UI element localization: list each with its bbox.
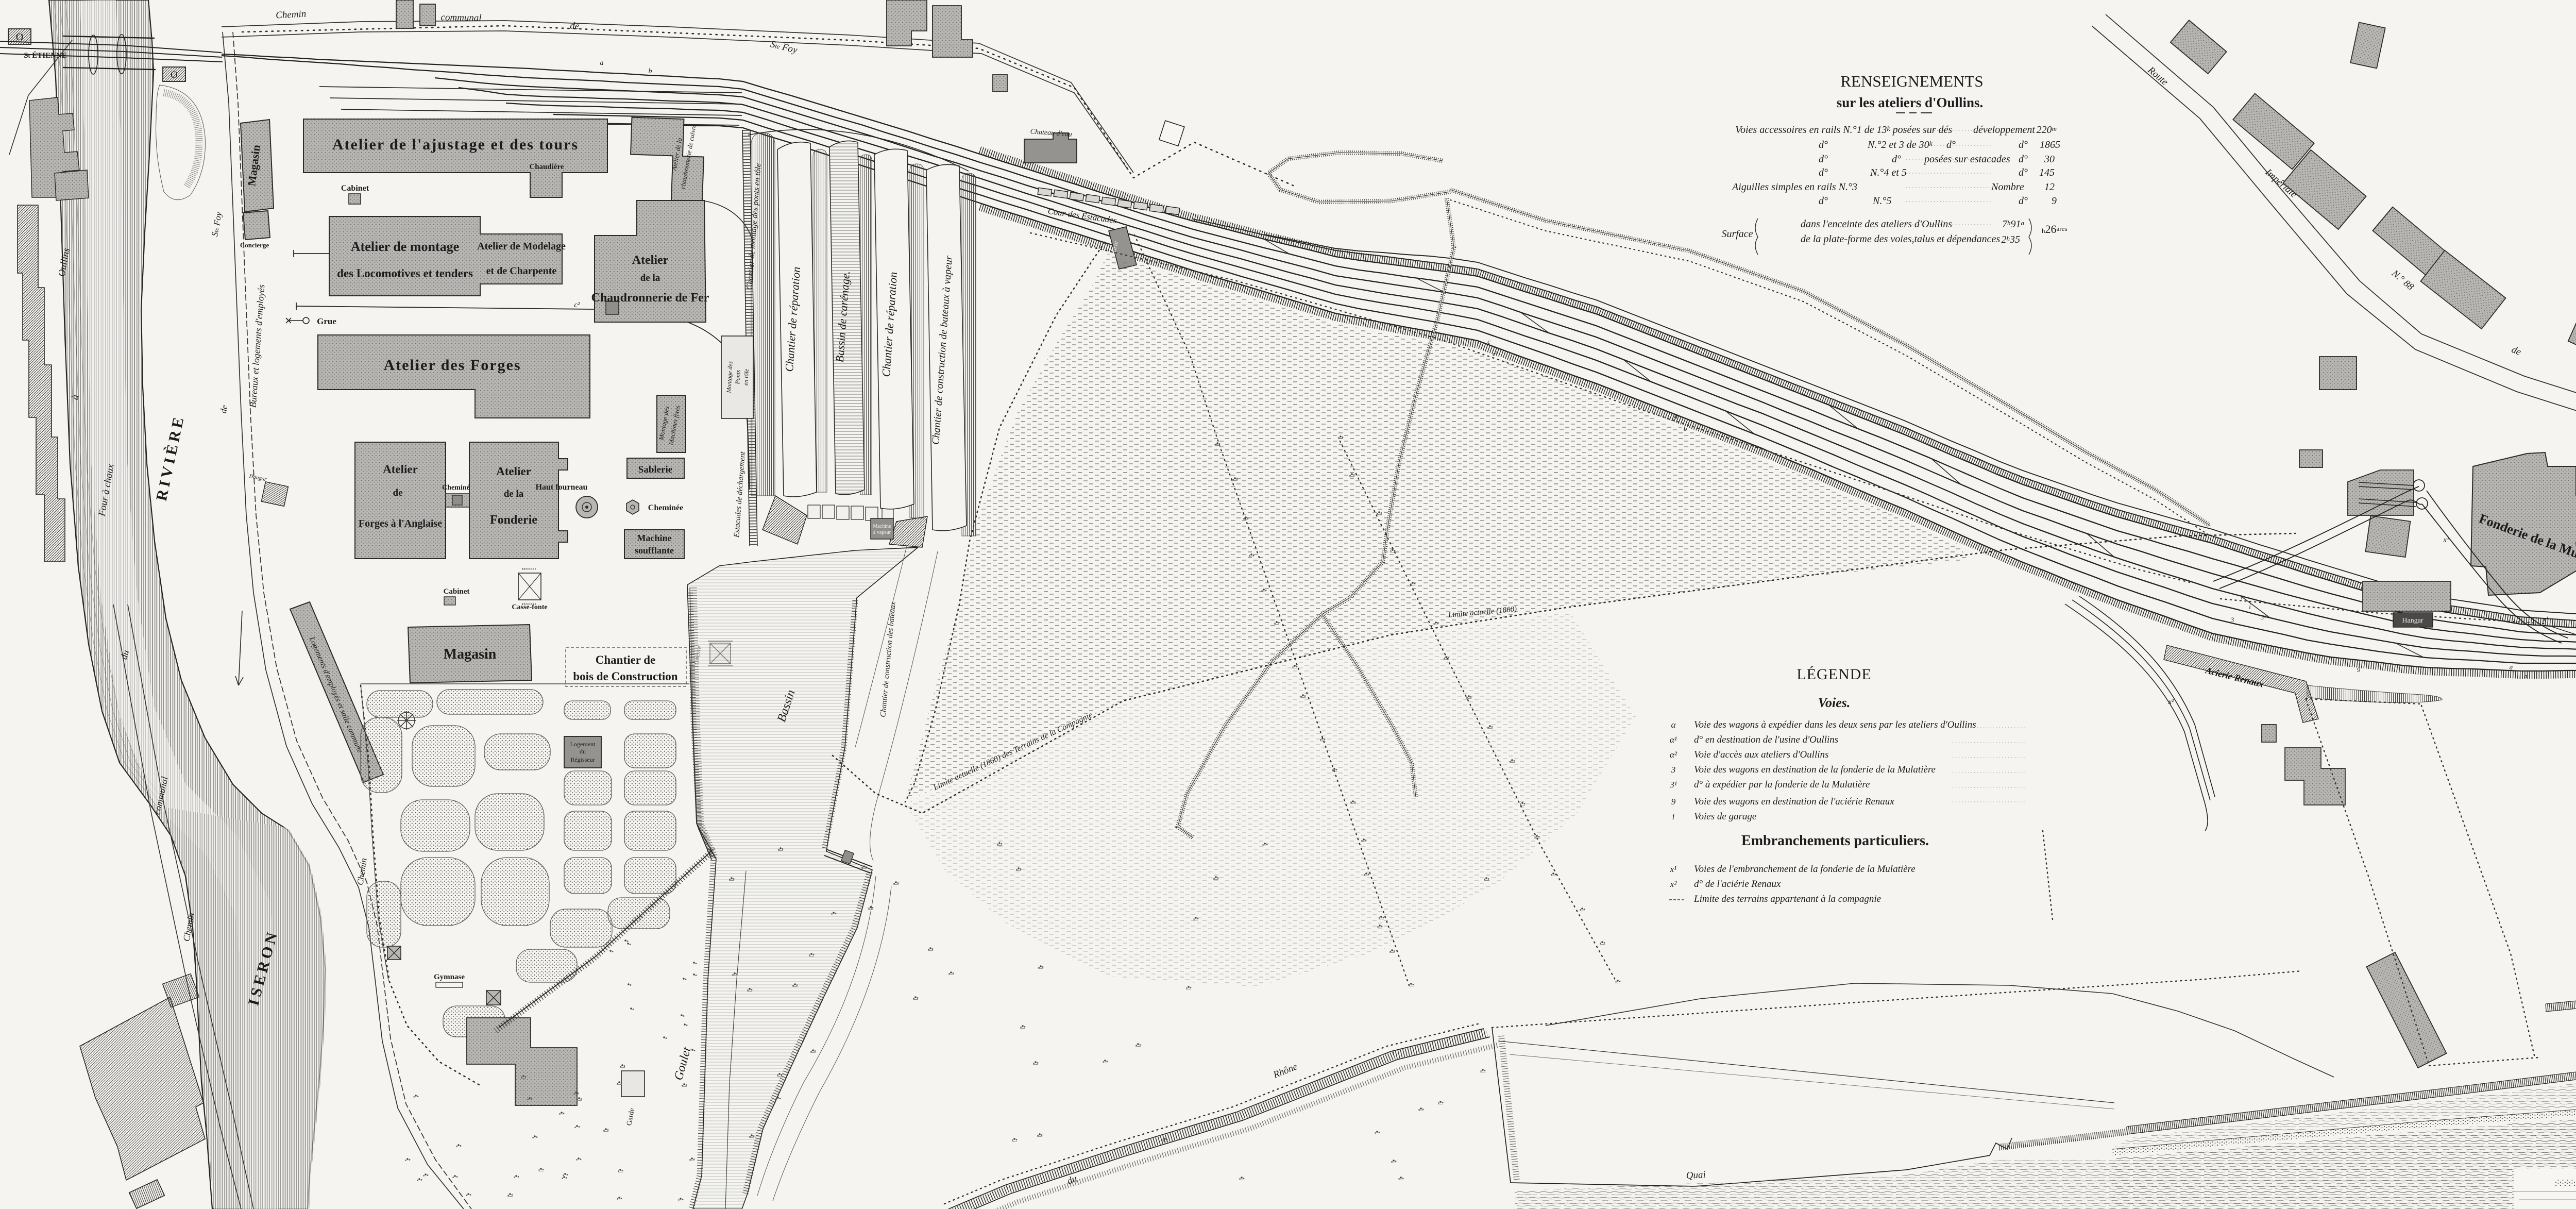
svg-text:sur les ateliers d'Oullins.: sur les ateliers d'Oullins. xyxy=(1837,95,1984,110)
svg-text:N.°2 et 3 de 30k: N.°2 et 3 de 30k xyxy=(1867,139,1933,150)
svg-text:Gymnase: Gymnase xyxy=(434,973,465,981)
svg-text:posées sur estacades: posées sur estacades xyxy=(1923,154,2010,165)
svg-text:bois de Construction: bois de Construction xyxy=(573,670,677,683)
svg-text:développement: développement xyxy=(1973,124,2035,136)
svg-text:Cheminée: Cheminée xyxy=(648,503,683,512)
svg-text:O: O xyxy=(171,70,178,80)
svg-text:Concierge: Concierge xyxy=(240,241,269,249)
svg-text:à vapeur: à vapeur xyxy=(873,530,891,535)
svg-text:x²: x² xyxy=(1670,879,1677,889)
svg-text:Grue: Grue xyxy=(317,316,336,326)
svg-text:9: 9 xyxy=(1671,797,1676,807)
svg-text:de: de xyxy=(393,488,403,498)
svg-text:Atelier: Atelier xyxy=(383,463,418,476)
svg-text:d°: d° xyxy=(1946,139,1956,150)
svg-text:Atelier des Forges: Atelier des Forges xyxy=(383,357,521,374)
svg-text:Atelier: Atelier xyxy=(632,254,669,267)
svg-text:Atelier de Modelage: Atelier de Modelage xyxy=(477,241,566,252)
svg-text:d°: d° xyxy=(2019,154,2028,165)
svg-text:Voie des wagons en destination: Voie des wagons en destination de l'acié… xyxy=(1694,796,1894,807)
svg-text:c¹: c¹ xyxy=(1493,350,1498,358)
svg-text:b: b xyxy=(649,68,652,75)
svg-text:Ponts: Ponts xyxy=(734,370,741,384)
svg-text:Voie des wagons en destination: Voie des wagons en destination de la fon… xyxy=(1694,764,1936,775)
svg-text:d°: d° xyxy=(1819,167,1828,178)
svg-text:c²: c² xyxy=(574,301,580,309)
svg-text:Atelier: Atelier xyxy=(496,465,531,478)
svg-text:Cabinet: Cabinet xyxy=(341,184,369,193)
svg-text:Chantier de: Chantier de xyxy=(596,653,656,666)
svg-text:Atelier de montage: Atelier de montage xyxy=(351,239,459,254)
svg-text:x¹: x¹ xyxy=(2543,616,2548,624)
svg-text:des Locomotives et tenders: des Locomotives et tenders xyxy=(337,267,473,280)
svg-text:i: i xyxy=(1672,812,1675,821)
svg-text:Casse-fonte: Casse-fonte xyxy=(512,603,547,611)
svg-text:Chemin: Chemin xyxy=(276,8,307,21)
svg-text:Logement: Logement xyxy=(570,741,596,748)
svg-text:Voie des wagons à expédier dan: Voie des wagons à expédier dans les deux… xyxy=(1694,719,1976,730)
svg-text:d°: d° xyxy=(2019,139,2028,150)
svg-text:Voies.: Voies. xyxy=(1818,695,1851,710)
svg-text:Voies de l'embranchement de: Voies de l'embranchement de la fonderie … xyxy=(1694,864,1916,875)
svg-text:2h35: 2h35 xyxy=(2002,234,2021,245)
svg-text:d° de l'aciérie R: d° de l'aciérie Renaux xyxy=(1694,879,1781,889)
svg-text:Embranchements particuliers.: Embranchements particuliers. xyxy=(1741,833,1929,849)
svg-text:Chaudière: Chaudière xyxy=(529,163,564,171)
svg-text:Sablerie: Sablerie xyxy=(638,464,673,475)
svg-text:d°: d° xyxy=(1892,154,1901,165)
svg-text:de: de xyxy=(570,20,580,31)
svg-text:a: a xyxy=(600,59,604,67)
svg-text:b: b xyxy=(1684,425,1687,432)
svg-text:LÉGENDE: LÉGENDE xyxy=(1797,666,1871,683)
svg-text:Limite des terrains appartenan: Limite des terrains appartenant à la com… xyxy=(1693,894,1881,904)
svg-text:Surface: Surface xyxy=(1721,228,1753,240)
svg-text:Régisseur: Régisseur xyxy=(570,756,595,763)
svg-text:α: α xyxy=(1671,720,1676,730)
svg-text:Voies de garage: Voies de garage xyxy=(1694,811,1756,822)
svg-text:Voie d'accès aux ateliers d'Ou: Voie d'accès aux ateliers d'Oullins xyxy=(1694,749,1828,760)
svg-text:145: 145 xyxy=(2039,167,2055,178)
svg-text:communal: communal xyxy=(440,12,482,23)
svg-text:9: 9 xyxy=(2357,666,2361,674)
svg-text:α¹: α¹ xyxy=(1670,735,1677,745)
svg-text:9: 9 xyxy=(2052,195,2057,207)
svg-text:Machine: Machine xyxy=(873,524,892,529)
svg-text:x²: x² xyxy=(2168,698,2174,706)
svg-text:a: a xyxy=(1674,412,1678,420)
svg-text:a: a xyxy=(2510,663,2513,671)
svg-text:de la: de la xyxy=(640,273,660,283)
svg-text:RENSEIGNEMENTS: RENSEIGNEMENTS xyxy=(1840,72,1983,90)
svg-text:O: O xyxy=(16,31,23,43)
svg-text:d°: d° xyxy=(1819,139,1828,150)
svg-text:Aiguilles simples en rails N.°: Aiguilles simples en rails N.°3 xyxy=(1731,181,1857,193)
svg-text:Fonderie: Fonderie xyxy=(490,513,537,527)
svg-text:Atelier de l'ajustage et des t: Atelier de l'ajustage et des tours xyxy=(332,136,579,153)
svg-text:3¹: 3¹ xyxy=(2260,613,2266,621)
svg-text:dans l'enceinte des ateliers d: dans l'enceinte des ateliers d'Oullins xyxy=(1801,219,1952,230)
svg-text:12: 12 xyxy=(2044,181,2055,193)
svg-text:de la plate-forme des voies,ta: de la plate-forme des voies,talus et dép… xyxy=(1801,233,2000,245)
svg-text:3: 3 xyxy=(2230,616,2234,624)
svg-text:i: i xyxy=(2241,593,2243,601)
svg-text:30: 30 xyxy=(2044,154,2055,165)
svg-text:d°: d° xyxy=(1819,154,1828,165)
svg-text:b: b xyxy=(2524,672,2528,680)
svg-text:3¹: 3¹ xyxy=(1669,780,1677,790)
svg-text:Forges à l'Anglaise: Forges à l'Anglaise xyxy=(359,518,442,529)
svg-text:3: 3 xyxy=(1671,765,1676,775)
svg-text:i: i xyxy=(2249,602,2251,610)
svg-text:d°: d° xyxy=(2019,195,2028,207)
svg-text:soufflante: soufflante xyxy=(635,545,674,556)
svg-text:x¹: x¹ xyxy=(1670,864,1677,874)
svg-text:Cheminée: Cheminée xyxy=(442,484,473,492)
svg-text:de la: de la xyxy=(504,489,524,499)
svg-text:et de Charpente: et de Charpente xyxy=(486,265,557,277)
svg-text:Magasin: Magasin xyxy=(444,646,497,662)
svg-text:N.°4 et 5: N.°4 et 5 xyxy=(1870,167,1907,178)
svg-text:x¹: x¹ xyxy=(2443,536,2449,544)
svg-text:Machine: Machine xyxy=(637,533,672,543)
svg-text:α²: α² xyxy=(1670,750,1677,760)
svg-text:Cabinet: Cabinet xyxy=(444,587,470,596)
svg-text:d°: d° xyxy=(1819,195,1828,207)
svg-text:Hangar: Hangar xyxy=(2402,617,2424,625)
svg-text:Voies accessoires en rails N.°: Voies accessoires en rails N.°1 de 13k p… xyxy=(1735,124,1952,136)
svg-text:du: du xyxy=(580,748,586,755)
svg-text:d° à expédier par la fo: d° à expédier par la fonderie de la Mula… xyxy=(1694,779,1870,790)
svg-text:Haut fourneau: Haut fourneau xyxy=(536,483,588,492)
svg-text:Nombre: Nombre xyxy=(1991,181,2024,193)
svg-text:en tôle: en tôle xyxy=(742,368,750,386)
svg-text:St ÉTIENNE: St ÉTIENNE xyxy=(24,51,67,60)
svg-text:d°: d° xyxy=(2019,167,2028,178)
svg-text:d° en destination de: d° en destination de l'usine d'Oullins xyxy=(1694,734,1838,745)
svg-text:1865: 1865 xyxy=(2040,139,2060,150)
svg-text:N.°5: N.°5 xyxy=(1872,195,1891,207)
svg-text:c: c xyxy=(1487,338,1490,345)
svg-text:Quai: Quai xyxy=(1686,1169,1706,1181)
